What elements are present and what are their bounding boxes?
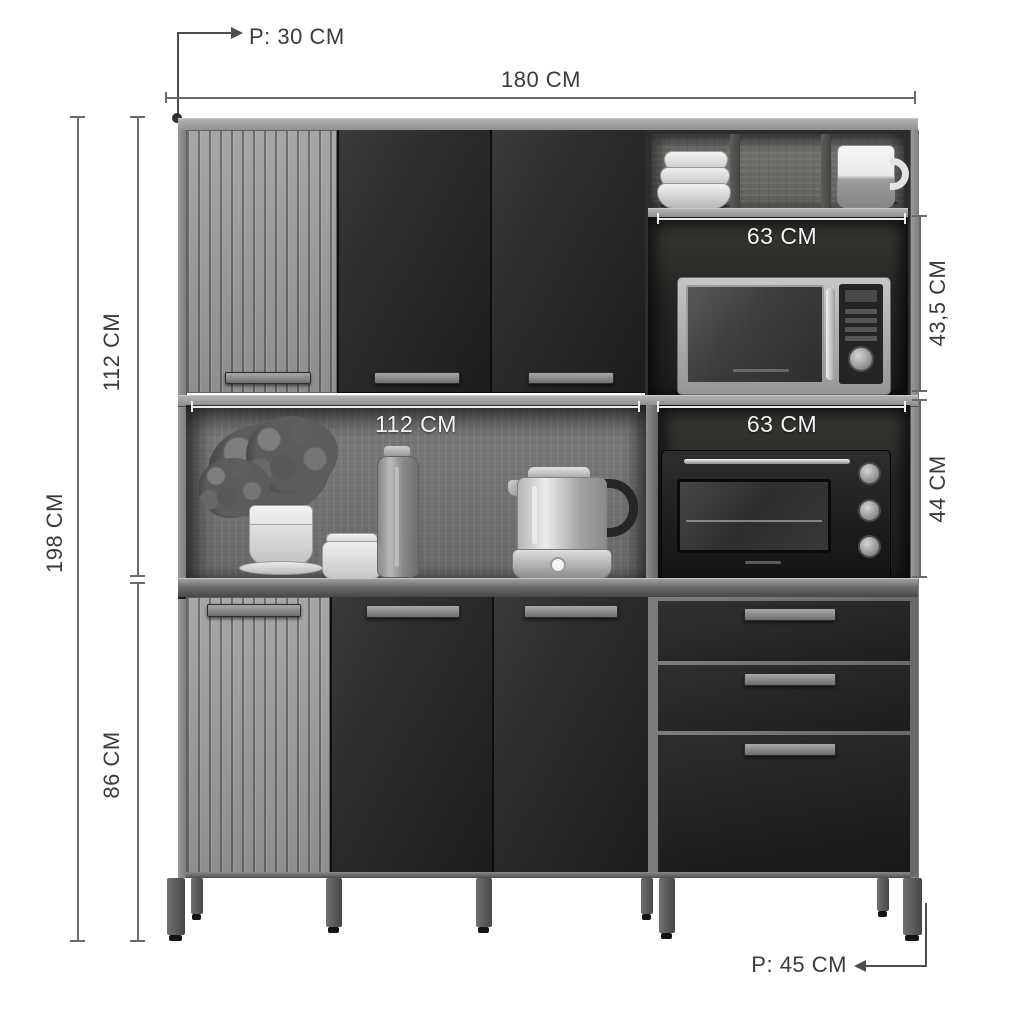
door-handle <box>374 372 460 384</box>
lower-ribbed-door <box>186 597 330 877</box>
oven-handle-bar <box>684 459 850 464</box>
oven-rack-line <box>686 520 822 522</box>
tick <box>130 575 145 577</box>
total-width-label: 180 CM <box>466 67 616 93</box>
drawer-handle <box>744 743 836 756</box>
dimension-line <box>137 583 139 941</box>
microwave-button <box>845 318 877 323</box>
oven-window <box>677 479 831 553</box>
oven-niche-height-label: 44 CM <box>925 455 951 522</box>
tick <box>912 390 927 392</box>
drawer-2 <box>658 665 910 731</box>
dimension-line <box>658 218 906 220</box>
upper-niche-width-label: 63 CM <box>658 223 906 250</box>
bowl <box>657 183 731 209</box>
cubby-divider <box>821 134 831 210</box>
oven-knob <box>858 535 881 558</box>
tick <box>165 92 167 103</box>
door-handle <box>524 605 618 618</box>
dimension-diagram: P: 30 CM 180 CM 198 CM 112 CM 86 CM <box>0 0 1013 1013</box>
tick <box>70 116 85 118</box>
microwave-button <box>845 309 877 314</box>
microwave-display <box>845 290 877 302</box>
tick <box>912 215 927 217</box>
drawer-handle <box>744 608 836 621</box>
dimension-line <box>192 406 640 408</box>
drawer-3 <box>658 735 910 872</box>
carafe-body <box>377 456 419 578</box>
dimension-line <box>658 406 906 408</box>
upper-ribbed-door <box>186 130 337 393</box>
plant-saucer <box>239 561 323 575</box>
cabinet-leg <box>191 878 203 914</box>
top-depth-label: P: 30 CM <box>249 24 345 50</box>
lower-door-1 <box>330 597 492 877</box>
mug-body <box>837 145 895 208</box>
arrow-left-icon <box>854 960 866 972</box>
door-handle <box>207 604 301 617</box>
base-depth-label: P: 45 CM <box>725 952 847 978</box>
carafe-highlight <box>395 467 399 567</box>
cabinet-leg <box>641 878 653 914</box>
drawer-1 <box>658 601 910 661</box>
base-height-label: 86 CM <box>99 731 125 798</box>
microwave-door-handle <box>826 288 835 380</box>
arrow-right-icon <box>231 27 243 39</box>
drawer-handle <box>744 673 836 686</box>
tick <box>130 582 145 584</box>
microwave-brand <box>733 369 789 372</box>
dimension-line <box>919 400 921 578</box>
door-handle <box>366 605 460 618</box>
upper-height-label: 112 CM <box>99 313 125 391</box>
dimension-line <box>177 33 179 118</box>
dimension-line <box>925 903 927 967</box>
kettle-body <box>517 477 607 553</box>
countertop <box>178 578 918 599</box>
microwave-button <box>845 336 877 341</box>
cabinet-leg <box>167 878 185 935</box>
cabinet-leg <box>877 878 889 911</box>
cabinet-leg <box>659 878 675 933</box>
lower-door-2 <box>492 597 648 877</box>
total-height-label: 198 CM <box>42 493 68 573</box>
dimension-line <box>77 117 79 942</box>
microwave-button <box>845 327 877 332</box>
kettle-base <box>512 549 612 579</box>
dimension-line <box>866 965 926 967</box>
canister-body <box>322 541 382 579</box>
cubby-divider <box>730 134 740 210</box>
tick <box>70 940 85 942</box>
dimension-line <box>166 97 916 99</box>
upper-door-2 <box>490 130 645 393</box>
microwave-control-panel <box>839 284 883 384</box>
cabinet-leg <box>326 878 342 927</box>
upper-door-1 <box>337 130 490 393</box>
door-handle <box>528 372 614 384</box>
tick <box>130 940 145 942</box>
upper-niche-height-label: 43,5 CM <box>925 260 951 347</box>
oven-knob <box>858 462 881 485</box>
cabinet-leg <box>903 878 922 935</box>
pot-rim-line <box>250 524 312 525</box>
microwave-knob <box>848 346 874 372</box>
kettle-button <box>550 557 566 573</box>
counter-divider <box>646 405 658 579</box>
kettle-highlight <box>532 486 537 544</box>
tick <box>130 116 145 118</box>
base-board <box>186 872 910 878</box>
door-handle <box>225 372 311 384</box>
oven-brand <box>745 561 781 564</box>
dimension-line <box>177 32 233 34</box>
oven-niche-width-label: 63 CM <box>658 411 906 438</box>
tick <box>914 91 916 104</box>
plant-pot <box>249 505 313 565</box>
tick <box>912 399 927 401</box>
oven-knob <box>858 499 881 522</box>
dimension-line <box>919 216 921 392</box>
cabinet-leg <box>476 878 492 927</box>
dimension-line <box>137 117 139 577</box>
